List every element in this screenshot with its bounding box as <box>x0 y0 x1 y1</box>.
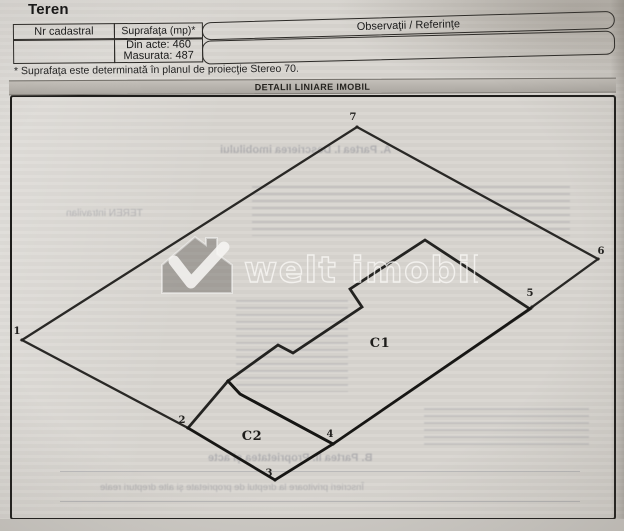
col-header-nr-cadastral: Nr cadastral <box>13 23 115 40</box>
footnote: * Suprafaţa este determinată în planul d… <box>14 63 299 77</box>
diagram-box <box>10 95 616 520</box>
cell-nr-cadastral <box>13 39 115 64</box>
suprafata-masurata: Masurata: 487 <box>123 50 193 62</box>
cell-suprafata: Din acte: 460 Masurata: 487 <box>114 38 203 63</box>
page-edge <box>0 519 624 531</box>
scanned-cadastral-page: { "page": { "title": "Teren", "footnote"… <box>0 0 624 531</box>
section-header-bar: DETALII LINIARE IMOBIL <box>9 78 616 96</box>
col-header-suprafata: Suprafaţa (mp)* <box>114 22 203 39</box>
section-header-label: DETALII LINIARE IMOBIL <box>255 81 371 92</box>
